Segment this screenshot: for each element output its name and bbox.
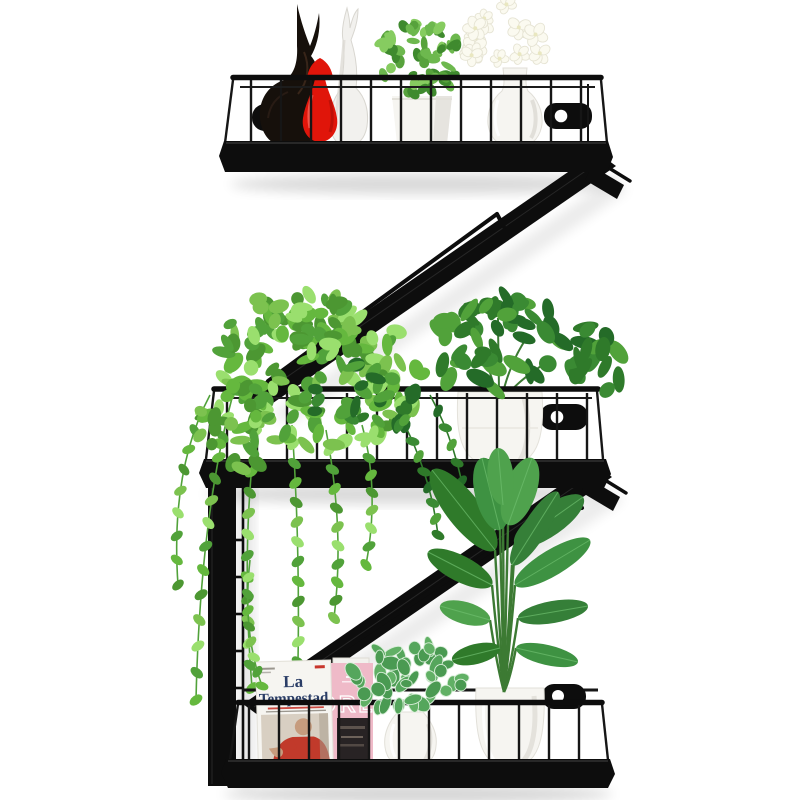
shelf-scene: ORLD La Tempestad [0,0,800,800]
top-shelf-plate [219,141,613,172]
mint-plant-foliage [373,17,462,102]
white-flower-bouquet [460,0,552,69]
top-shelf [219,0,630,199]
middle-shelf-bracket [540,404,588,430]
magazine-la-tempestad: La Tempestad [256,660,334,768]
product-image: ORLD La Tempestad [0,0,800,800]
mounting-hole [555,110,568,123]
bottom-shelf-plate [221,759,615,788]
magazine-title-line1: La [283,672,304,692]
pink-book-photo [337,718,368,760]
magazine-photo [261,713,330,767]
